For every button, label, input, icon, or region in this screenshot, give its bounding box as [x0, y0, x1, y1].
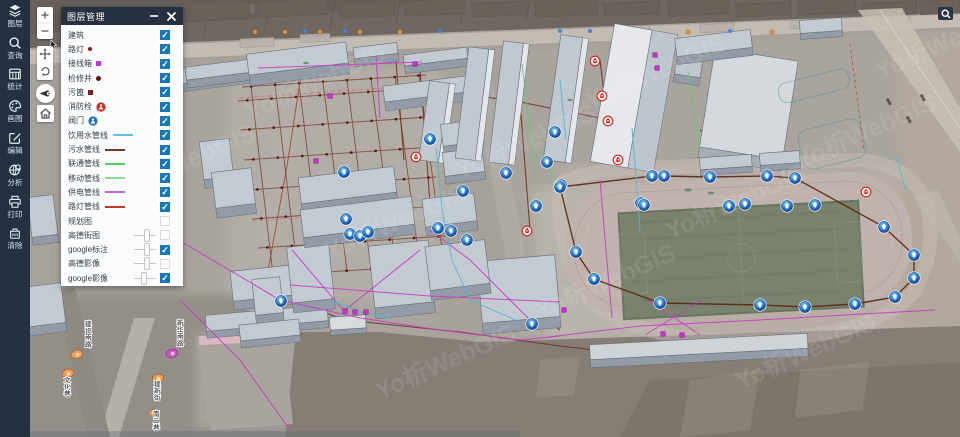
- svg-text:建新街: 建新街: [154, 379, 161, 402]
- svg-text:文化巷: 文化巷: [64, 375, 71, 398]
- svg-text:新华南路: 新华南路: [177, 318, 184, 347]
- svg-text:南二巷: 南二巷: [153, 409, 160, 432]
- svg-text:建设南路: 建设南路: [85, 319, 92, 348]
